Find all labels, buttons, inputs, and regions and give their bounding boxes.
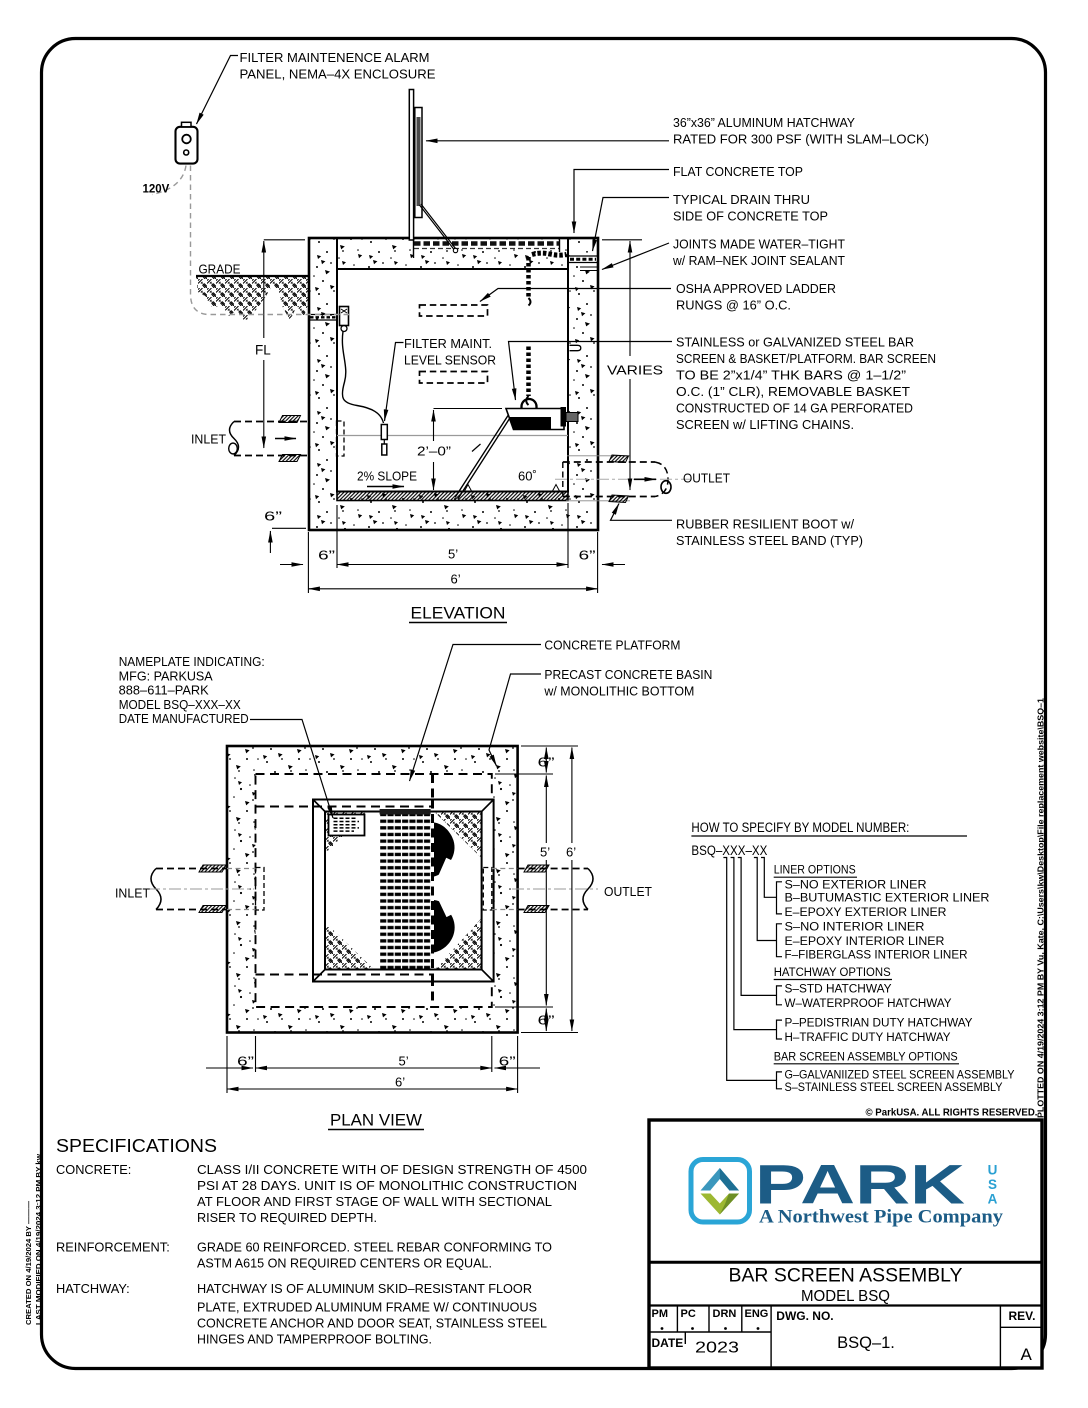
svg-text:SPECIFICATIONS: SPECIFICATIONS: [56, 1135, 217, 1156]
svg-text:RUBBER RESILIENT BOOT w/: RUBBER RESILIENT BOOT w/: [676, 517, 854, 532]
svg-text:RATED FOR 300 PSF (WITH SLAM–L: RATED FOR 300 PSF (WITH SLAM–LOCK): [673, 132, 929, 147]
svg-text:CONCRETE:: CONCRETE:: [56, 1162, 131, 1177]
svg-text:60˚: 60˚: [518, 469, 537, 484]
svg-text:PSI AT 28 DAYS. UNIT IS OF MO: PSI AT 28 DAYS. UNIT IS OF MONOLITHIC CO…: [197, 1178, 577, 1193]
svg-text:FILTER MAINTENENCE ALARM: FILTER MAINTENENCE ALARM: [240, 50, 430, 65]
svg-text:F–FIBERGLASS INTERIOR LINER: F–FIBERGLASS INTERIOR LINER: [785, 948, 968, 962]
svg-text:DATE MANUFACTURED: DATE MANUFACTURED: [119, 712, 249, 726]
svg-text:A: A: [1021, 1345, 1033, 1364]
svg-text:6”: 6”: [538, 755, 555, 770]
svg-text:PLOTTED ON 4/19/2024 3:12 PM B: PLOTTED ON 4/19/2024 3:12 PM BY Vu, Kate…: [1037, 697, 1046, 1118]
svg-text:OSHA APPROVED LADDER: OSHA APPROVED LADDER: [676, 281, 836, 296]
svg-text:RISER TO REQUIRED DEPTH.: RISER TO REQUIRED DEPTH.: [197, 1210, 377, 1225]
svg-text:BAR SCREEN ASSEMBLY OPTIONS: BAR SCREEN ASSEMBLY OPTIONS: [774, 1049, 958, 1063]
svg-text:6”: 6”: [237, 1054, 254, 1069]
svg-text:B–BUTUMASTIC EXTERIOR LINER: B–BUTUMASTIC EXTERIOR LINER: [785, 891, 990, 905]
svg-text:LINER OPTIONS: LINER OPTIONS: [774, 863, 856, 877]
svg-text:A: A: [988, 1192, 998, 1207]
svg-text:NAMEPLATE INDICATING:: NAMEPLATE INDICATING:: [119, 655, 265, 669]
svg-text:SIDE OF CONCRETE TOP: SIDE OF CONCRETE TOP: [673, 209, 828, 224]
svg-text:DWG. NO.: DWG. NO.: [776, 1309, 833, 1323]
svg-text:OUTLET: OUTLET: [683, 471, 730, 486]
svg-text:PANEL, NEMA–4X ENCLOSURE: PANEL, NEMA–4X ENCLOSURE: [240, 67, 436, 82]
svg-text:FILTER MAINT.: FILTER MAINT.: [404, 336, 492, 351]
svg-text:6’: 6’: [451, 572, 461, 587]
svg-text:ELEVATION: ELEVATION: [411, 605, 506, 623]
svg-text:W–WATERPROOF HATCHWAY: W–WATERPROOF HATCHWAY: [785, 996, 952, 1010]
svg-text:GRADE 60 REINFORCED. STEEL RE: GRADE 60 REINFORCED. STEEL REBAR CONFORM…: [197, 1240, 552, 1255]
svg-text:CLASS I/II CONCRETE WITH OF DE: CLASS I/II CONCRETE WITH OF DESIGN STREN…: [197, 1162, 587, 1177]
svg-text:HATCHWAY IS OF ALUMINUM SKID–R: HATCHWAY IS OF ALUMINUM SKID–RESISTANT F…: [197, 1281, 532, 1296]
svg-text:36”x36” ALUMINUM HATCHWAY: 36”x36” ALUMINUM HATCHWAY: [673, 115, 855, 130]
svg-text:OUTLET: OUTLET: [604, 884, 652, 899]
svg-text:AT FLOOR AND FIRST STAGE OF WA: AT FLOOR AND FIRST STAGE OF WALL WITH SE…: [197, 1194, 552, 1209]
svg-text:PC: PC: [681, 1308, 696, 1320]
svg-text:FL: FL: [255, 343, 271, 358]
svg-text:888–611–PARK: 888–611–PARK: [119, 684, 210, 698]
svg-text:6”: 6”: [318, 548, 335, 563]
svg-text:S: S: [988, 1177, 997, 1192]
svg-text:S–NO INTERIOR LINER: S–NO INTERIOR LINER: [785, 919, 925, 933]
svg-text:TYPICAL DRAIN THRU: TYPICAL DRAIN THRU: [673, 192, 810, 207]
svg-text:5’: 5’: [448, 547, 458, 562]
svg-text:O.C. (1” CLR), REMOVABLE BASKE: O.C. (1” CLR), REMOVABLE BASKET: [676, 384, 910, 399]
svg-text:© ParkUSA. ALL RIGHTS RESER: © ParkUSA. ALL RIGHTS RESERVED.: [866, 1107, 1038, 1119]
svg-text:PLATE, EXTRUDED ALUMINUM FRAME: PLATE, EXTRUDED ALUMINUM FRAME W/ CONTIN…: [197, 1300, 537, 1315]
svg-text:TO BE 2”x1/4” THK BARS @ 1–1/2: TO BE 2”x1/4” THK BARS @ 1–1/2”: [676, 368, 906, 383]
svg-text:STAINLESS or GALVANIZED STEEL: STAINLESS or GALVANIZED STEEL BAR: [676, 335, 914, 350]
svg-text:DATE: DATE: [652, 1336, 684, 1350]
svg-text:RUNGS @ 16” O.C.: RUNGS @ 16” O.C.: [676, 298, 791, 313]
svg-text:2% SLOPE: 2% SLOPE: [357, 469, 417, 484]
svg-text:SCREEN & BASKET/PLATFORM. BAR: SCREEN & BASKET/PLATFORM. BAR SCREEN: [676, 351, 936, 366]
svg-text:6’: 6’: [566, 845, 576, 860]
svg-text:A Northwest Pipe Company: A Northwest Pipe Company: [759, 1207, 1004, 1228]
svg-text:HATCHWAY:: HATCHWAY:: [56, 1281, 130, 1296]
svg-text:6”: 6”: [264, 509, 282, 524]
svg-text:HOW TO SPECIFY BY MODEL NUMBER: HOW TO SPECIFY BY MODEL NUMBER:: [691, 820, 909, 835]
svg-text:w/ MONOLITHIC BOTTOM: w/ MONOLITHIC BOTTOM: [543, 684, 694, 699]
svg-text:6’: 6’: [395, 1075, 405, 1090]
svg-text:E–EPOXY EXTERIOR LINER: E–EPOXY EXTERIOR LINER: [785, 905, 947, 919]
svg-text:H–TRAFFIC DUTY HATCHWAY: H–TRAFFIC DUTY HATCHWAY: [785, 1030, 951, 1044]
svg-text:BSQ–XXX–XX: BSQ–XXX–XX: [691, 843, 767, 858]
svg-text:120V: 120V: [143, 184, 170, 196]
svg-text:P–PEDISTRIAN DUTY HATCHWAY: P–PEDISTRIAN DUTY HATCHWAY: [785, 1016, 973, 1030]
svg-text:CONCRETE PLATFORM: CONCRETE PLATFORM: [544, 638, 680, 653]
svg-text:HINGES AND TAMPERPROOF BOLTING: HINGES AND TAMPERPROOF BOLTING.: [197, 1332, 432, 1347]
svg-text:LAST MODIFIED ON 4/19/2024 3:1: LAST MODIFIED ON 4/19/2024 3:12 PM BY kw: [34, 1154, 43, 1325]
svg-text:INLET: INLET: [115, 886, 150, 901]
svg-text:GRADE: GRADE: [199, 262, 241, 277]
svg-text:6”: 6”: [538, 1013, 555, 1028]
svg-text:w/ RAM–NEK JOINT SEALANT: w/ RAM–NEK JOINT SEALANT: [672, 253, 845, 268]
svg-text:S–NO EXTERIOR LINER: S–NO EXTERIOR LINER: [785, 877, 927, 891]
svg-text:JOINTS MADE WATER–TIGHT: JOINTS MADE WATER–TIGHT: [673, 237, 845, 252]
svg-text:MODEL BSQ: MODEL BSQ: [801, 1288, 890, 1305]
svg-text:E–EPOXY INTERIOR LINER: E–EPOXY INTERIOR LINER: [785, 934, 945, 948]
svg-text:DRN: DRN: [713, 1308, 737, 1320]
svg-text:5’: 5’: [540, 845, 550, 860]
svg-text:CONSTRUCTED OF 14 GA PERFORATE: CONSTRUCTED OF 14 GA PERFORATED: [676, 401, 913, 416]
svg-text:CREATED ON 4/19/2024 BY ———: CREATED ON 4/19/2024 BY ———: [24, 1201, 33, 1325]
svg-text:6”: 6”: [579, 548, 596, 563]
svg-text:S–STD HATCHWAY: S–STD HATCHWAY: [785, 981, 892, 995]
svg-text:STAINLESS STEEL BAND (TYP): STAINLESS STEEL BAND (TYP): [676, 533, 863, 548]
svg-text:ASTM A615 ON REQUIRED CENTERS: ASTM A615 ON REQUIRED CENTERS OR EQUAL.: [197, 1256, 492, 1271]
svg-text:INLET: INLET: [191, 432, 226, 447]
svg-text:2’–0”: 2’–0”: [417, 444, 451, 459]
svg-text:LEVEL SENSOR: LEVEL SENSOR: [404, 353, 496, 368]
svg-text:6”: 6”: [499, 1054, 516, 1069]
svg-text:MODEL BSQ–XXX–XX: MODEL BSQ–XXX–XX: [119, 698, 242, 712]
svg-text:2023: 2023: [695, 1340, 739, 1357]
svg-text:U: U: [988, 1163, 998, 1178]
svg-text:VARIES: VARIES: [607, 363, 663, 378]
svg-text:REINFORCEMENT:: REINFORCEMENT:: [56, 1240, 170, 1255]
svg-text:SCREEN w/ LIFTING CHAINS.: SCREEN w/ LIFTING CHAINS.: [676, 417, 854, 432]
svg-text:REV.: REV.: [1009, 1309, 1036, 1323]
svg-text:5’: 5’: [399, 1054, 409, 1069]
svg-text:FLAT CONCRETE TOP: FLAT CONCRETE TOP: [673, 164, 803, 179]
svg-text:CONCRETE ANCHOR AND DOOR SEAT,: CONCRETE ANCHOR AND DOOR SEAT, STAINLESS…: [197, 1316, 547, 1331]
svg-text:BAR SCREEN ASSEMBLY: BAR SCREEN ASSEMBLY: [729, 1265, 963, 1287]
svg-text:PLAN VIEW: PLAN VIEW: [330, 1112, 422, 1130]
svg-text:BSQ–1.: BSQ–1.: [837, 1334, 895, 1352]
svg-text:S–STAINLESS STEEL SCREEN ASSEM: S–STAINLESS STEEL SCREEN ASSEMBLY: [785, 1080, 1003, 1094]
svg-text:MFG: PARKUSA: MFG: PARKUSA: [119, 669, 214, 683]
svg-text:PM: PM: [652, 1308, 669, 1320]
svg-text:ENG: ENG: [745, 1308, 769, 1320]
svg-text:HATCHWAY OPTIONS: HATCHWAY OPTIONS: [774, 965, 891, 979]
svg-text:PRECAST CONCRETE BASIN: PRECAST CONCRETE BASIN: [544, 667, 712, 682]
